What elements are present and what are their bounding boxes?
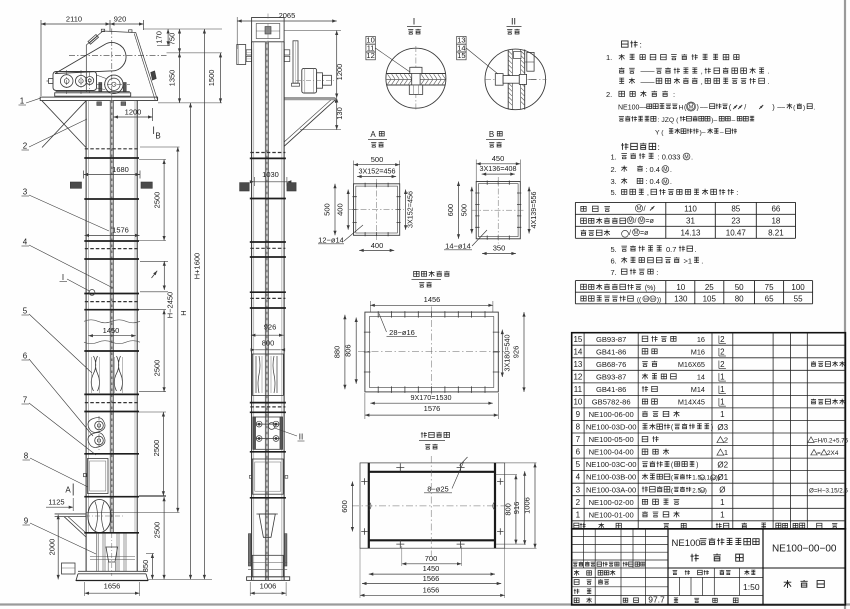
svg-text:=: = — [817, 450, 821, 457]
svg-text:NE100−00−00: NE100−00−00 — [772, 544, 837, 555]
svg-text:2: 2 — [720, 335, 725, 344]
svg-text:1566: 1566 — [423, 574, 440, 583]
svg-text:12: 12 — [366, 51, 374, 60]
svg-text:10.47: 10.47 — [726, 228, 747, 237]
svg-text:31: 31 — [686, 216, 695, 225]
svg-text:8: 8 — [24, 452, 29, 461]
svg-text::: : — [658, 142, 660, 152]
svg-text:450: 450 — [492, 154, 505, 163]
svg-text:H+1600: H+1600 — [193, 253, 202, 279]
svg-text:2500: 2500 — [153, 360, 162, 377]
svg-text:800: 800 — [262, 339, 275, 348]
svg-text:1: 1 — [720, 510, 725, 519]
svg-text:5.: 5. — [611, 188, 617, 197]
svg-text:9: 9 — [24, 517, 29, 526]
svg-text:: 0.4: : 0.4 — [645, 165, 660, 174]
svg-text:500: 500 — [459, 204, 468, 217]
svg-text:500: 500 — [323, 203, 332, 216]
svg-text:2065: 2065 — [279, 11, 296, 20]
svg-text:2: 2 — [724, 435, 728, 444]
svg-text:1: 1 — [720, 385, 725, 394]
svg-text:8−ø25: 8−ø25 — [427, 484, 448, 493]
svg-text:3X152=456: 3X152=456 — [406, 191, 415, 228]
svg-text:M: M — [639, 218, 643, 224]
svg-text:NE100-01-00: NE100-01-00 — [589, 510, 634, 519]
svg-text:M: M — [689, 104, 694, 110]
svg-text:1: 1 — [720, 397, 725, 406]
svg-text:=ø: =ø — [646, 218, 655, 225]
svg-text:.: . — [813, 105, 815, 112]
svg-text:15: 15 — [573, 335, 582, 344]
svg-text:1.: 1. — [611, 152, 617, 161]
svg-text:––: –– — [777, 105, 785, 112]
svg-text:50: 50 — [735, 283, 744, 292]
svg-text:B: B — [489, 130, 494, 139]
svg-text:97.7: 97.7 — [648, 595, 665, 605]
svg-text:14.13: 14.13 — [680, 228, 701, 237]
svg-text:,: , — [647, 188, 649, 197]
svg-text:––: –– — [700, 105, 708, 112]
svg-text:M: M — [644, 297, 648, 302]
svg-text:110: 110 — [684, 204, 697, 213]
svg-text:NE100-03D-00: NE100-03D-00 — [586, 423, 637, 432]
svg-text:GB93-87: GB93-87 — [596, 335, 626, 344]
svg-text:.: . — [691, 152, 693, 161]
svg-text:1450: 1450 — [103, 326, 120, 335]
svg-text:2: 2 — [576, 498, 581, 507]
svg-text:14: 14 — [573, 347, 582, 356]
svg-text:16: 16 — [697, 335, 705, 344]
svg-text:1350: 1350 — [168, 70, 177, 87]
svg-text:14: 14 — [697, 372, 705, 381]
svg-text:25: 25 — [705, 283, 714, 292]
svg-text:1: 1 — [720, 410, 725, 419]
svg-text:–: – — [720, 129, 724, 136]
svg-text:920: 920 — [114, 14, 127, 23]
svg-text:——: —— — [641, 79, 655, 86]
svg-text:M: M — [684, 154, 688, 160]
svg-text:1200: 1200 — [125, 107, 142, 116]
svg-text:H−2450: H−2450 — [166, 292, 175, 318]
svg-text:I: I — [413, 17, 416, 27]
svg-text:/: / — [629, 230, 631, 237]
svg-text:1200: 1200 — [335, 64, 344, 81]
svg-text:M: M — [712, 476, 715, 480]
svg-text:2X4: 2X4 — [827, 450, 839, 457]
svg-text:10: 10 — [676, 283, 685, 292]
svg-text::: : — [673, 90, 675, 99]
svg-text:2500: 2500 — [153, 522, 162, 539]
svg-text:12−ø14: 12−ø14 — [318, 235, 344, 244]
svg-text:II: II — [511, 17, 516, 27]
svg-text:M: M — [663, 167, 667, 173]
svg-text:700: 700 — [425, 554, 438, 563]
svg-text:18: 18 — [771, 216, 780, 225]
svg-text:M: M — [701, 489, 704, 493]
svg-text:400: 400 — [336, 203, 345, 216]
svg-text:M: M — [628, 218, 632, 224]
svg-text:15: 15 — [457, 51, 465, 60]
svg-text:H: H — [679, 105, 684, 112]
svg-text:75: 75 — [765, 283, 774, 292]
svg-text:7: 7 — [23, 396, 28, 405]
svg-text:): ) — [696, 462, 698, 469]
svg-text:7.: 7. — [611, 268, 617, 277]
svg-text:1:50: 1:50 — [743, 582, 760, 592]
svg-text:800: 800 — [503, 503, 512, 516]
svg-text:350: 350 — [493, 244, 506, 253]
svg-text:>1: >1 — [683, 256, 692, 265]
svg-text:2: 2 — [720, 347, 725, 356]
svg-text:600: 600 — [340, 500, 349, 513]
svg-text:.: . — [768, 79, 770, 86]
svg-text:.: . — [695, 245, 697, 254]
svg-text:1: 1 — [576, 510, 581, 519]
svg-text:80: 80 — [735, 295, 744, 304]
svg-text:9X170=1530: 9X170=1530 — [411, 393, 452, 402]
svg-text:3X180=540: 3X180=540 — [503, 335, 512, 372]
svg-text:GB93-87: GB93-87 — [596, 372, 626, 381]
svg-text:M: M — [651, 297, 655, 302]
svg-text:Ø2: Ø2 — [717, 460, 728, 469]
svg-text:GB41-86: GB41-86 — [596, 347, 626, 356]
svg-text:14−ø14: 14−ø14 — [445, 241, 471, 250]
svg-text:.: . — [701, 256, 703, 265]
svg-text:916: 916 — [512, 502, 521, 515]
svg-text:Ø1: Ø1 — [717, 473, 728, 482]
svg-text:NE100––: NE100–– — [618, 105, 647, 112]
svg-text:4: 4 — [23, 238, 28, 247]
svg-text:2000: 2000 — [48, 539, 57, 556]
svg-text:Ø3: Ø3 — [717, 423, 728, 432]
svg-text:5.: 5. — [611, 245, 617, 254]
svg-text:: 0.4: : 0.4 — [645, 177, 660, 186]
svg-text:): ) — [705, 487, 707, 494]
svg-text:)–: )– — [700, 129, 706, 136]
svg-text:500: 500 — [371, 155, 384, 164]
svg-text:M: M — [637, 206, 642, 212]
svg-text:GB68-76: GB68-76 — [596, 360, 626, 369]
svg-text:850: 850 — [141, 560, 150, 573]
svg-text:.: . — [670, 177, 672, 186]
svg-text:Y (: Y ( — [655, 129, 664, 136]
svg-text:3: 3 — [23, 188, 28, 197]
svg-text:3X152=456: 3X152=456 — [359, 166, 396, 175]
svg-text:2500: 2500 — [153, 192, 162, 209]
svg-text:28−ø16: 28−ø16 — [389, 328, 415, 337]
svg-text:H: H — [179, 310, 188, 315]
svg-text:8: 8 — [576, 423, 581, 432]
svg-text:0.7: 0.7 — [666, 245, 676, 254]
svg-text:2: 2 — [720, 360, 725, 369]
svg-text:): ) — [711, 425, 713, 432]
svg-text:/: / — [635, 218, 637, 225]
svg-text:10: 10 — [573, 397, 582, 406]
svg-text:GB5782-86: GB5782-86 — [592, 397, 631, 406]
svg-text:=ø: =ø — [640, 230, 649, 237]
svg-text:6.: 6. — [611, 256, 617, 265]
svg-text:M: M — [701, 476, 704, 480]
svg-text:2: 2 — [23, 142, 28, 151]
svg-text:926: 926 — [512, 346, 521, 359]
svg-text:3: 3 — [576, 485, 581, 494]
svg-text:)–: )– — [711, 117, 717, 124]
svg-text:1576: 1576 — [424, 404, 441, 413]
svg-text:1: 1 — [20, 97, 25, 106]
svg-text:B: B — [155, 132, 160, 141]
svg-text:1576: 1576 — [112, 225, 129, 234]
svg-text:750: 750 — [168, 33, 177, 46]
svg-text:100: 100 — [791, 283, 805, 292]
svg-text:5: 5 — [576, 460, 581, 469]
svg-text:NE100-03B-00: NE100-03B-00 — [586, 473, 636, 482]
svg-text:3X136=408: 3X136=408 — [480, 164, 517, 173]
svg-text:1.: 1. — [606, 53, 612, 62]
svg-text:1006: 1006 — [260, 582, 277, 591]
svg-text:170: 170 — [155, 31, 164, 44]
svg-text:NE100-03C-00: NE100-03C-00 — [586, 460, 637, 469]
svg-text:1656: 1656 — [423, 585, 440, 594]
svg-text:2.: 2. — [611, 165, 617, 174]
svg-text:1006: 1006 — [523, 497, 532, 514]
svg-text:12: 12 — [573, 372, 582, 381]
svg-text:——: —— — [641, 69, 655, 76]
svg-text:6: 6 — [23, 352, 28, 361]
svg-text:II: II — [299, 433, 303, 442]
svg-text:Ø=H−3.15/2.5: Ø=H−3.15/2.5 — [809, 487, 848, 494]
svg-text:65: 65 — [765, 295, 774, 304]
svg-text:Ø: Ø — [719, 485, 725, 494]
svg-text:M16X65: M16X65 — [678, 360, 705, 369]
svg-text:NE100-04-00: NE100-04-00 — [589, 448, 634, 457]
svg-text::: : — [640, 40, 642, 50]
svg-text:926: 926 — [264, 323, 277, 332]
svg-text:1456: 1456 — [424, 295, 441, 304]
svg-text:6: 6 — [576, 448, 581, 457]
svg-text:105: 105 — [703, 295, 717, 304]
svg-text:1125: 1125 — [48, 497, 64, 506]
svg-text:NE100-06-00: NE100-06-00 — [589, 410, 634, 419]
svg-text:M14: M14 — [691, 385, 705, 394]
svg-text:M14X45: M14X45 — [678, 397, 705, 406]
svg-text:M: M — [663, 179, 667, 185]
svg-text:A: A — [370, 130, 376, 139]
svg-text:2500: 2500 — [152, 440, 161, 457]
svg-text:.: . — [768, 69, 770, 76]
svg-text:)): )) — [657, 297, 661, 304]
svg-text:1: 1 — [720, 498, 725, 507]
svg-text:,: , — [701, 79, 703, 86]
svg-text:M: M — [634, 230, 638, 236]
svg-text:,: , — [701, 69, 703, 76]
svg-text:NE100: NE100 — [672, 538, 701, 549]
svg-text:: JZQ (: : JZQ ( — [658, 117, 680, 124]
svg-text:130: 130 — [335, 107, 344, 120]
svg-text:23: 23 — [731, 216, 740, 225]
svg-text:3.: 3. — [611, 177, 617, 186]
svg-text:M16: M16 — [691, 347, 705, 356]
svg-text::: : — [656, 268, 658, 277]
svg-text:8.21: 8.21 — [768, 228, 784, 237]
svg-text:4: 4 — [576, 473, 581, 482]
svg-text:I: I — [62, 273, 64, 282]
svg-text:GB41-86: GB41-86 — [596, 385, 626, 394]
svg-text:4X139=556: 4X139=556 — [529, 192, 538, 229]
svg-text:11: 11 — [574, 385, 583, 394]
svg-text:NE100-02-00: NE100-02-00 — [589, 498, 634, 507]
svg-text:55: 55 — [794, 295, 803, 304]
svg-text:13: 13 — [573, 360, 582, 369]
svg-text:1: 1 — [720, 372, 725, 381]
svg-text:A: A — [65, 486, 71, 495]
svg-text:130: 130 — [674, 295, 688, 304]
svg-text:600: 600 — [446, 204, 455, 217]
svg-text:66: 66 — [771, 204, 780, 213]
svg-text:: 0.033: : 0.033 — [658, 152, 681, 161]
svg-text:–: – — [732, 117, 736, 124]
svg-text:NE100-03A-00: NE100-03A-00 — [586, 485, 636, 494]
svg-text:85: 85 — [731, 204, 740, 213]
svg-text:): ) — [803, 105, 805, 112]
svg-text:1030: 1030 — [262, 170, 279, 179]
svg-text:1450: 1450 — [423, 564, 440, 573]
svg-text:7: 7 — [576, 435, 581, 444]
svg-text:880: 880 — [332, 346, 341, 359]
svg-text:5: 5 — [23, 307, 28, 316]
svg-text:(%): (%) — [645, 285, 656, 292]
svg-text:.: . — [670, 165, 672, 174]
svg-text:2.: 2. — [606, 90, 612, 99]
svg-text:400: 400 — [371, 241, 384, 250]
svg-text:=H/0.2+5.75: =H/0.2+5.75 — [814, 437, 849, 444]
svg-text:2110: 2110 — [66, 14, 82, 23]
svg-text:806: 806 — [344, 344, 353, 357]
svg-text:1656: 1656 — [104, 582, 121, 591]
svg-text::: : — [736, 188, 738, 197]
svg-text:1: 1 — [724, 448, 728, 457]
svg-text:): ) — [697, 105, 699, 112]
svg-text:1680: 1680 — [112, 165, 129, 174]
svg-text:1500: 1500 — [207, 70, 216, 87]
svg-text:NE100-05-00: NE100-05-00 — [589, 435, 634, 444]
svg-text:/: / — [744, 105, 746, 112]
svg-text:9: 9 — [576, 410, 581, 419]
